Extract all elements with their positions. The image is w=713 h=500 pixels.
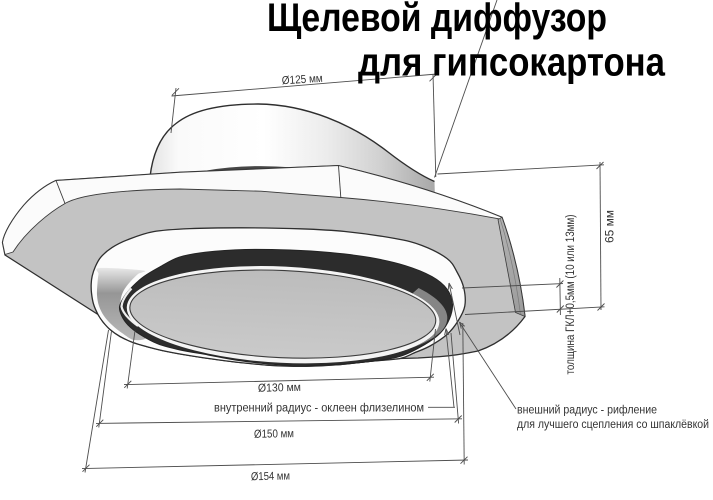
svg-text:толщина ГКЛ+0,5мм (10 или 13мм: толщина ГКЛ+0,5мм (10 или 13мм) — [565, 214, 577, 374]
svg-text:Щелевой диффузор: Щелевой диффузор — [267, 0, 607, 40]
svg-text:Ø150 мм: Ø150 мм — [254, 428, 294, 440]
svg-text:внутренний радиус - оклеен фли: внутренний радиус - оклеен флизелином — [214, 402, 424, 414]
svg-text:Ø125 мм: Ø125 мм — [281, 73, 323, 87]
svg-text:Ø130 мм: Ø130 мм — [258, 382, 301, 395]
svg-text:внешний радиус - рифление: внешний радиус - рифление — [517, 405, 657, 417]
svg-text:для лучшего сцепления со шпакл: для лучшего сцепления со шпаклёвкой — [517, 419, 709, 431]
svg-text:Ø154 мм: Ø154 мм — [251, 470, 290, 483]
svg-text:65 мм: 65 мм — [605, 210, 617, 243]
svg-text:для гипсокартона: для гипсокартона — [358, 40, 666, 84]
